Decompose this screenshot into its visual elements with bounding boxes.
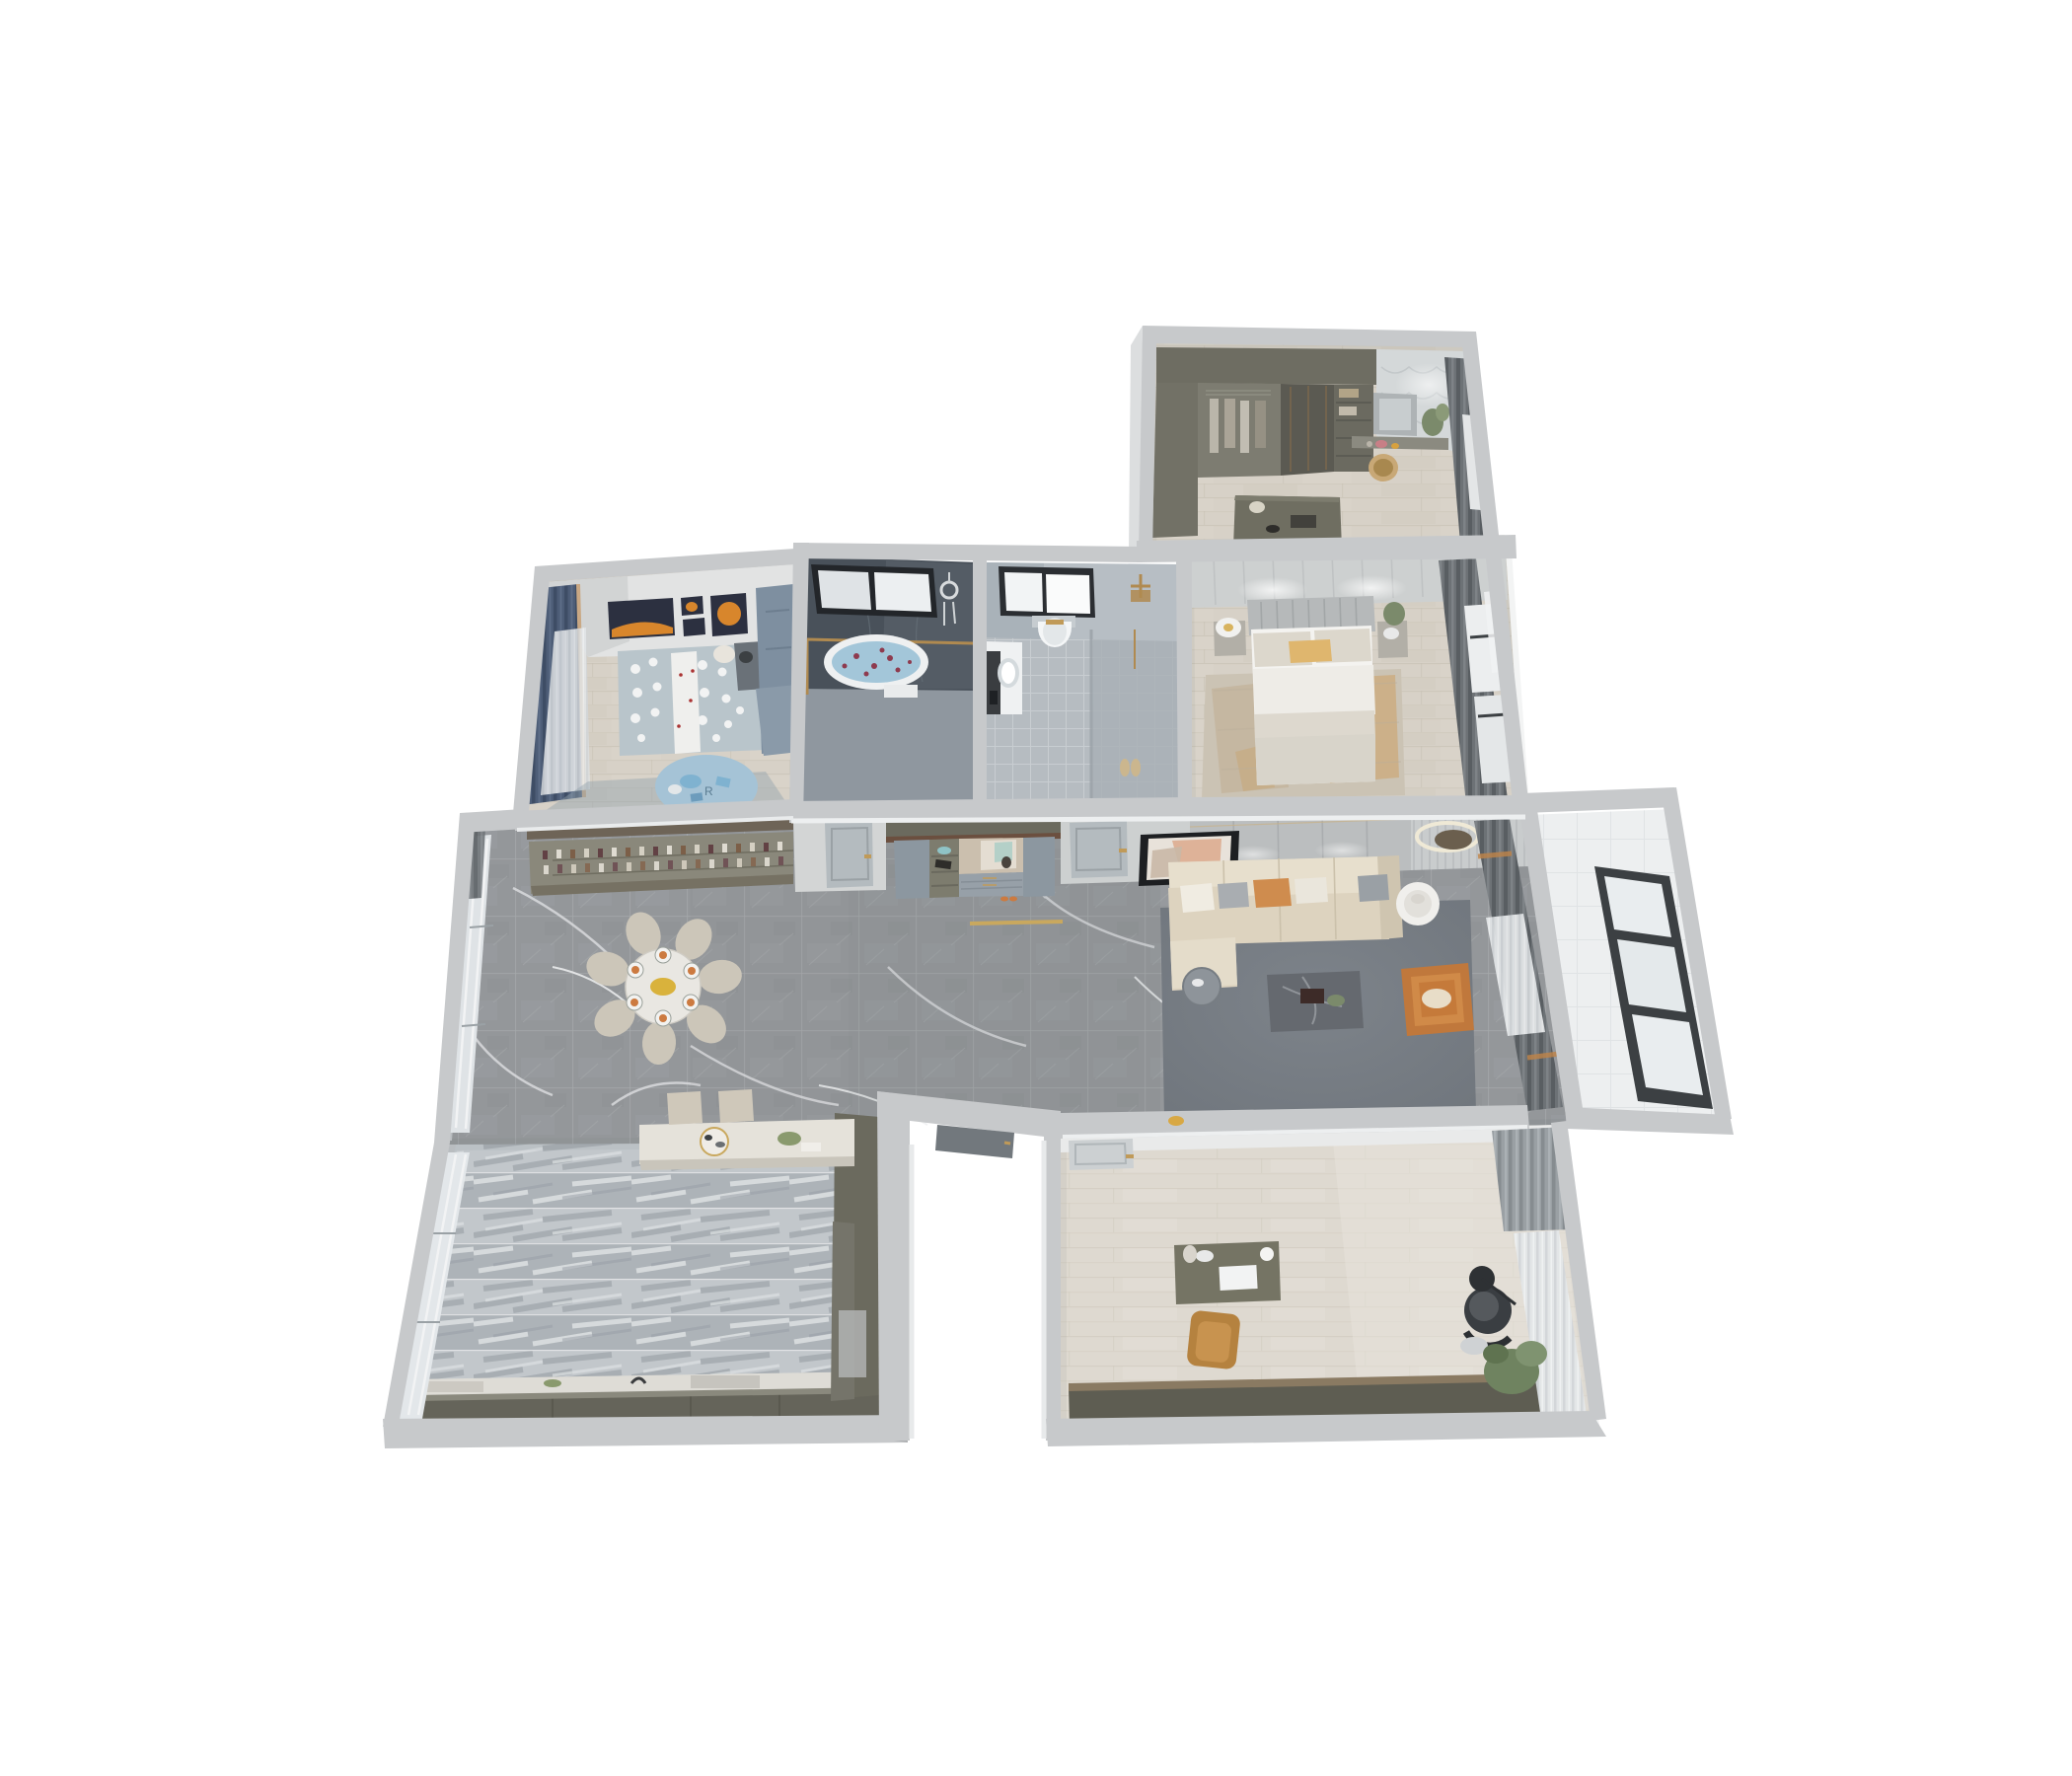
svg-text:R: R xyxy=(704,784,713,798)
